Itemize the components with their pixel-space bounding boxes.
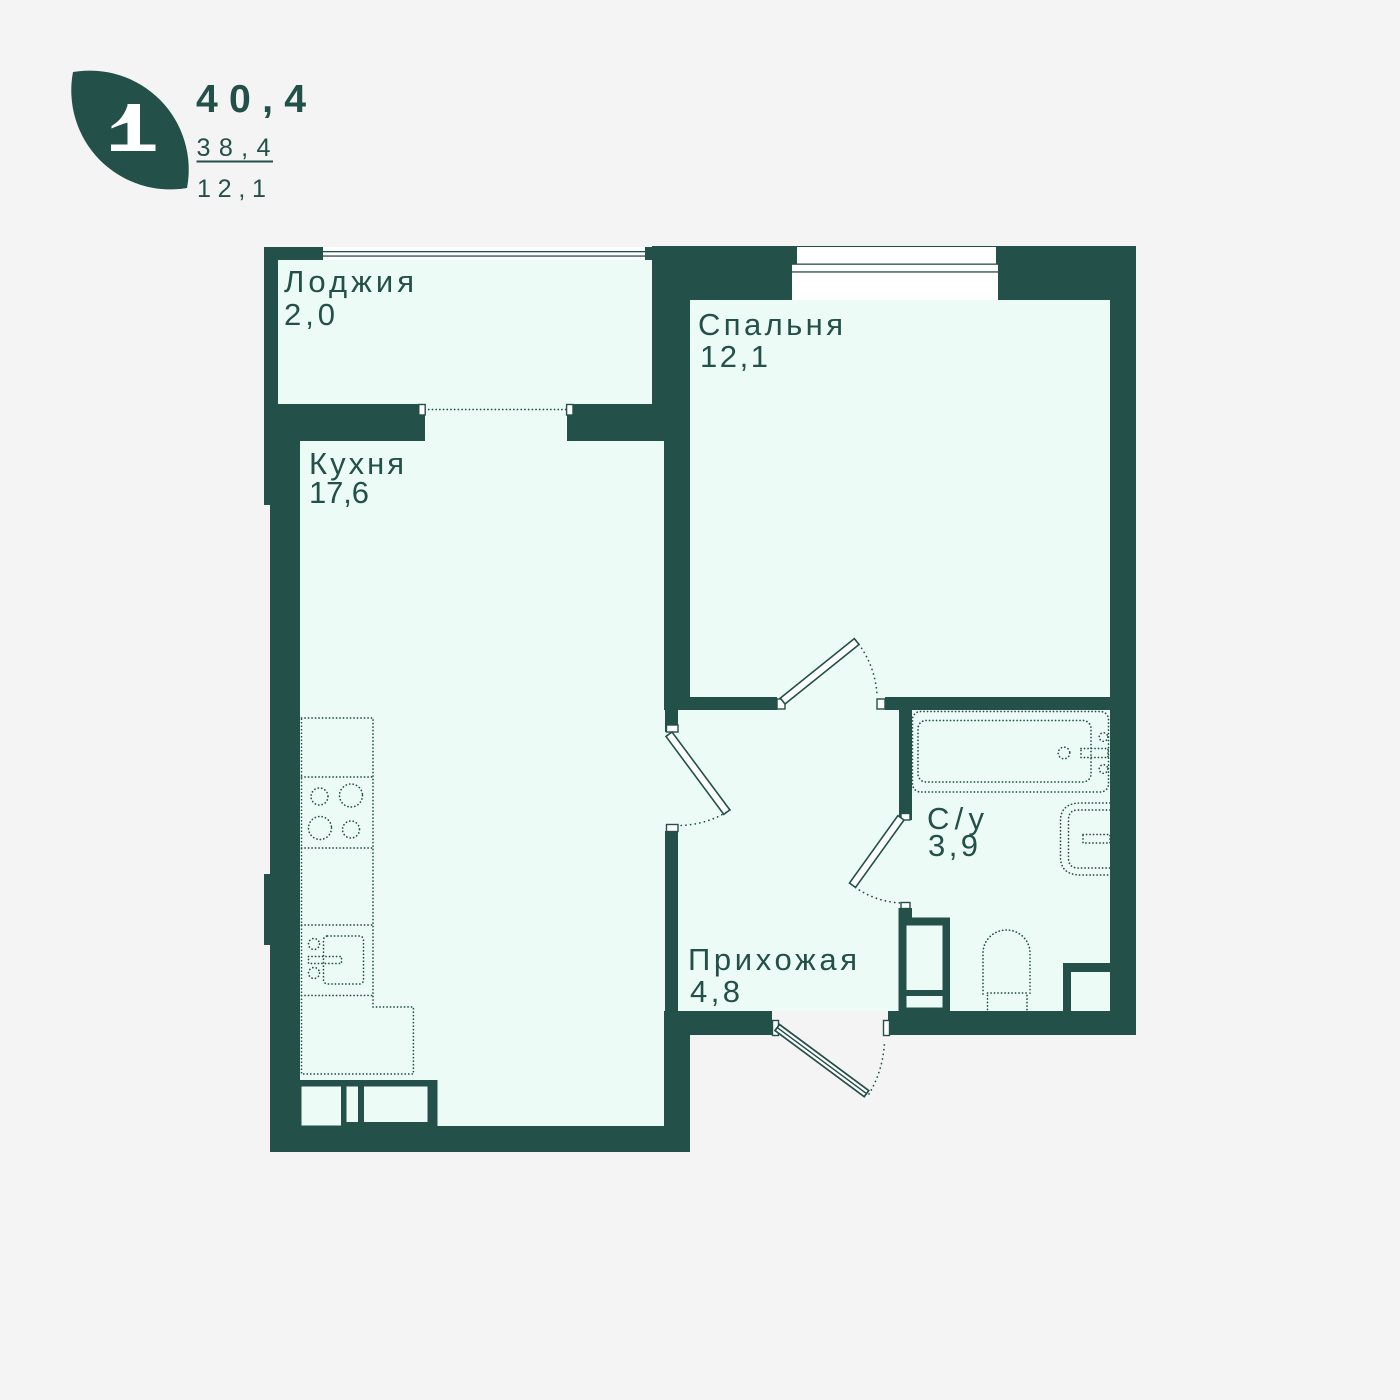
svg-text:3,9: 3,9 <box>928 828 978 863</box>
svg-text:2,0: 2,0 <box>284 297 335 332</box>
svg-text:12,1: 12,1 <box>700 339 768 374</box>
svg-text:17,6: 17,6 <box>309 475 369 510</box>
svg-text:Спальня: Спальня <box>698 307 843 342</box>
svg-text:4,8: 4,8 <box>690 974 740 1009</box>
svg-text:12,1: 12,1 <box>197 175 266 203</box>
